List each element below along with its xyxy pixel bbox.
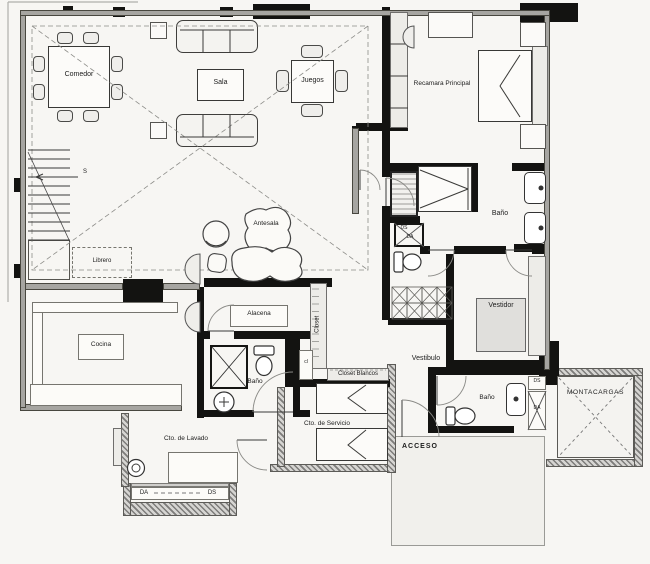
label-bano-principal: Baño: [486, 210, 514, 218]
label-closet-blancos: Closet Blancos: [329, 371, 387, 378]
label-montacargas: MONTACARGAS: [557, 389, 634, 396]
label-closet: Closet: [315, 302, 322, 346]
label-bano-acceso: Baño: [472, 394, 502, 401]
label-acceso: ACCESO: [402, 443, 472, 451]
label-alacena: Alacena: [230, 310, 288, 317]
label-cocina: Cocina: [78, 341, 124, 348]
label-cto-servicio: Cto. de Servicio: [290, 420, 364, 427]
label-vestidor: Vestidor: [470, 302, 532, 310]
floor-plan: Comedor Sala Juegos Recamara Principal A…: [0, 0, 650, 564]
label-da-balcon: DA: [136, 490, 152, 497]
label-stairs-s: S: [79, 169, 91, 176]
label-da-principal: DA: [402, 235, 418, 241]
label-bano-servicio: Baño: [240, 378, 270, 385]
label-juegos: Juegos: [291, 77, 334, 85]
label-recamara-principal: Recamara Principal: [403, 80, 481, 87]
label-antesala: Antesala: [242, 220, 290, 227]
label-comedor: Comedor: [48, 71, 110, 79]
label-da-acceso: DA: [528, 406, 546, 412]
label-ds-acceso: DS: [528, 379, 546, 385]
label-cl: cl: [299, 360, 313, 366]
label-vestibulo: Vestibulo: [398, 355, 454, 363]
label-librero: Librero: [72, 258, 132, 265]
label-sala: Sala: [197, 79, 244, 87]
label-ds-principal: DS: [396, 226, 412, 232]
label-ds-balcon: DS: [204, 490, 220, 497]
label-cto-lavado: Cto. de Lavado: [150, 435, 222, 442]
